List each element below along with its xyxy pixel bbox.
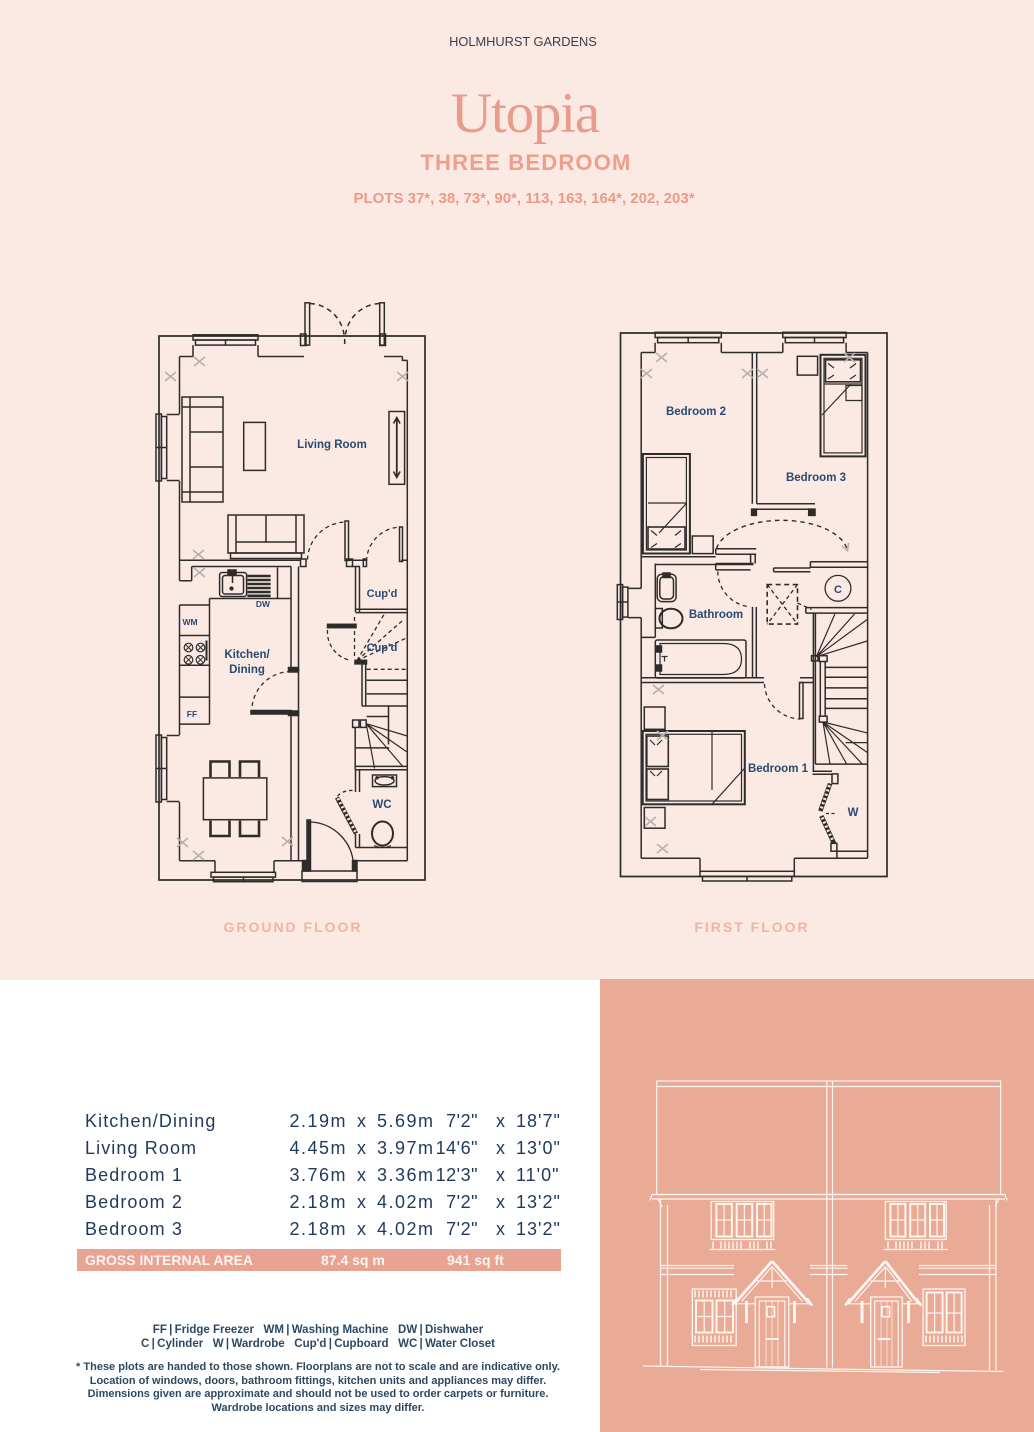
svg-text:Bathroom: Bathroom [689, 609, 743, 621]
svg-text:WM: WM [182, 617, 197, 627]
svg-text:Living Room: Living Room [297, 439, 367, 451]
svg-text:Bedroom 3: Bedroom 3 [786, 472, 846, 484]
svg-text:Cup'd: Cup'd [367, 588, 398, 600]
svg-text:Dining: Dining [229, 664, 265, 676]
svg-text:Cup'd: Cup'd [367, 642, 398, 654]
svg-text:Bedroom 2: Bedroom 2 [666, 406, 726, 418]
svg-text:Bedroom 1: Bedroom 1 [748, 763, 809, 775]
svg-text:Kitchen/: Kitchen/ [224, 649, 270, 661]
svg-text:WC: WC [372, 799, 391, 811]
svg-text:DW: DW [256, 599, 271, 609]
svg-text:W: W [848, 807, 859, 819]
svg-text:FF: FF [187, 709, 197, 719]
svg-text:C: C [834, 584, 842, 596]
